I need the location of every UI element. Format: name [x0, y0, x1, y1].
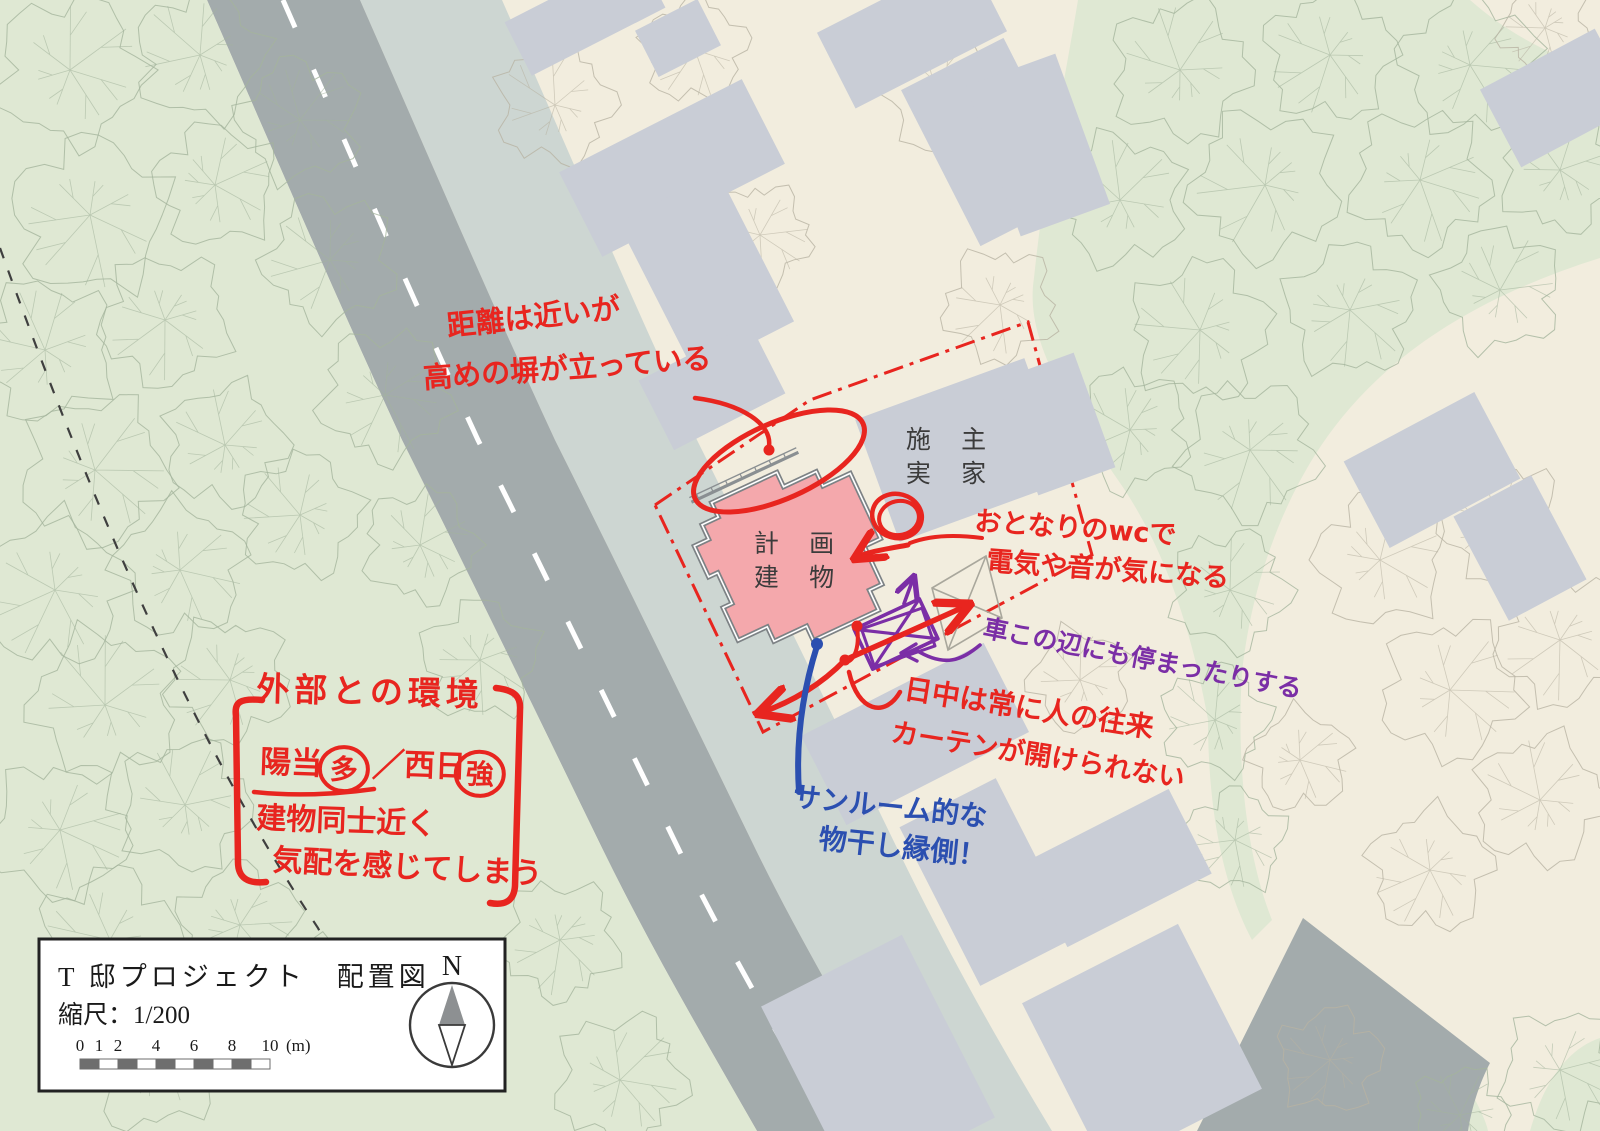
planned-building-label-2: 建 物 [754, 564, 846, 592]
wall-leader-dot [764, 445, 775, 456]
parents-house-label-2: 実 家 [906, 460, 998, 488]
scale-tick-2: 2 [114, 1036, 123, 1055]
scale-tick-5: 8 [228, 1036, 237, 1055]
scale-label: 縮尺：1/200 [58, 1001, 190, 1029]
site-plan-page: 施 主 実 家 計 画 建 物 距離は近いが 高めの塀が立っている おとなりのw… [0, 0, 1600, 1131]
env-line3: 建物同士近く [256, 801, 437, 842]
env-west-sun-circled: 強 [465, 757, 494, 791]
scale-tick-4: 6 [190, 1036, 199, 1055]
site-plan-drawing: 施 主 実 家 計 画 建 物 距離は近いが 高めの塀が立っている おとなりのw… [0, 0, 1600, 1131]
env-sun: 陽当 [259, 744, 322, 782]
scale-unit: (m) [286, 1036, 311, 1055]
sunroom-dot [811, 638, 823, 650]
env-title: 外部との環境 [256, 669, 485, 714]
north-label: N [442, 951, 462, 982]
planned-building-label-1: 計 画 [754, 530, 846, 558]
parents-house-label-1: 施 主 [906, 426, 998, 454]
project-title: T 邸プロジェクト 配置図 [58, 962, 430, 992]
scale-tick-0: 0 [76, 1036, 85, 1055]
env-sun-circled: 多 [329, 753, 358, 787]
title-block: T 邸プロジェクト 配置図 縮尺：1/200 0 1 2 4 6 8 10 (m… [39, 939, 505, 1091]
scale-tick-1: 1 [95, 1036, 104, 1055]
traffic-dot-1 [852, 621, 863, 632]
scale-tick-6: 10 [262, 1036, 279, 1055]
scale-tick-3: 4 [152, 1036, 161, 1055]
env-slash: ／ [371, 745, 405, 785]
